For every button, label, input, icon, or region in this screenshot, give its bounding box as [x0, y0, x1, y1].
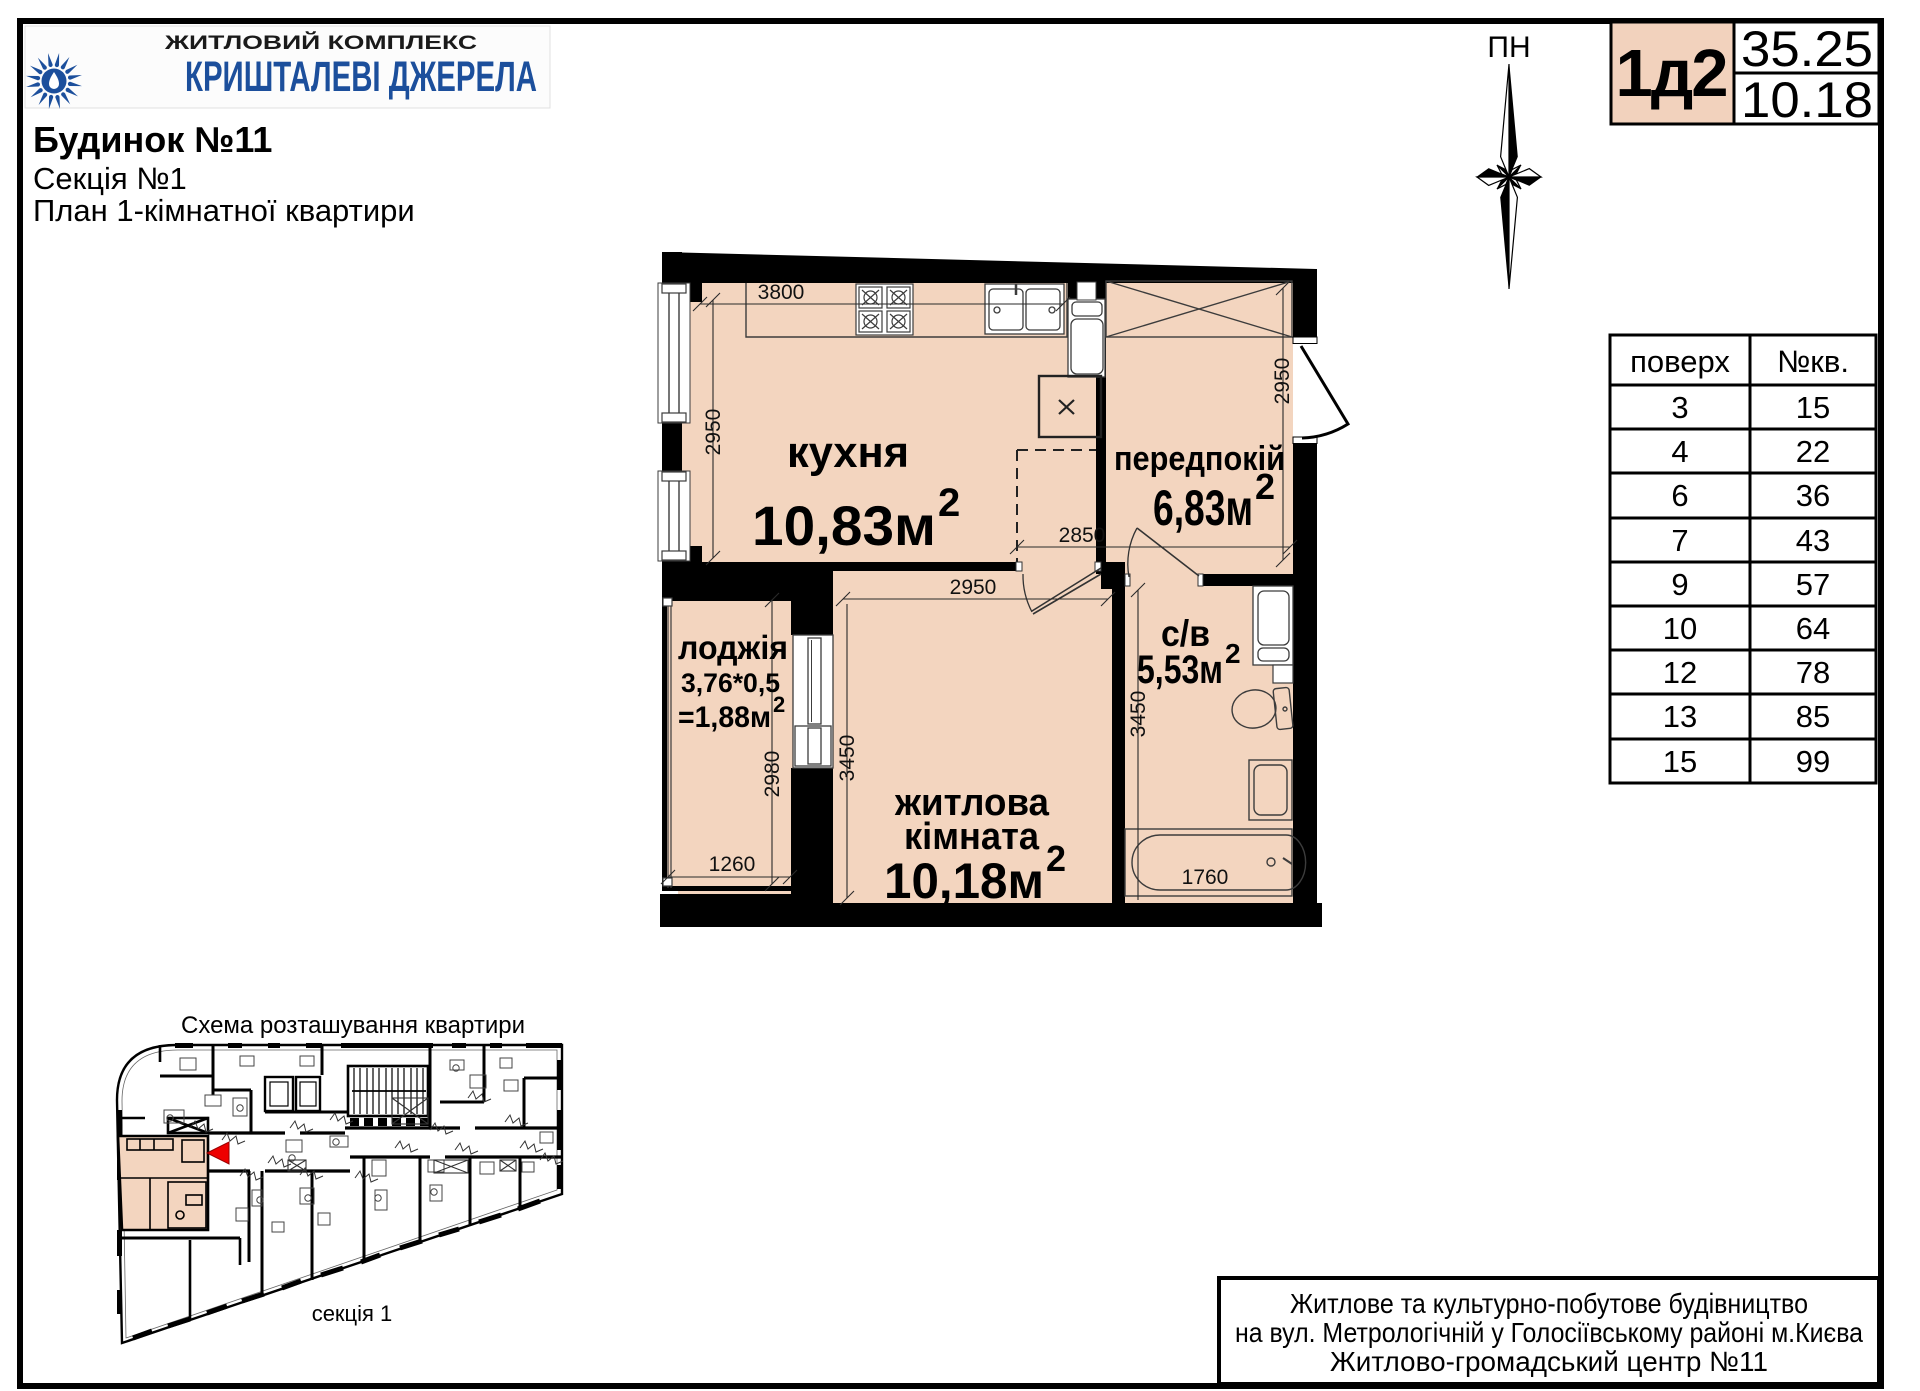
svg-text:=1,88м: =1,88м — [678, 701, 771, 734]
svg-text:64: 64 — [1796, 611, 1830, 646]
svg-text:10,18м: 10,18м — [884, 853, 1044, 909]
svg-text:№кв.: №кв. — [1777, 344, 1849, 379]
svg-text:Житлово-громадський центр №11: Житлово-громадський центр №11 — [1330, 1346, 1768, 1377]
svg-text:43: 43 — [1796, 523, 1830, 558]
svg-text:2: 2 — [1046, 838, 1066, 879]
svg-text:22: 22 — [1796, 434, 1830, 469]
svg-text:ЖИТЛОВИЙ КОМПЛЕКС: ЖИТЛОВИЙ КОМПЛЕКС — [164, 30, 477, 54]
svg-text:6: 6 — [1671, 478, 1688, 513]
svg-text:Секція №1: Секція №1 — [33, 161, 187, 196]
svg-text:7: 7 — [1671, 523, 1688, 558]
svg-text:6,83м: 6,83м — [1153, 480, 1253, 536]
svg-text:78: 78 — [1796, 655, 1830, 690]
svg-text:2: 2 — [1225, 638, 1241, 669]
svg-text:3450: 3450 — [1127, 691, 1150, 738]
svg-text:36: 36 — [1796, 478, 1830, 513]
svg-text:5,53м: 5,53м — [1137, 648, 1223, 692]
svg-text:1д2: 1д2 — [1615, 36, 1726, 111]
svg-text:1260: 1260 — [709, 853, 756, 876]
svg-text:2850: 2850 — [1059, 524, 1106, 547]
svg-text:План 1-кімнатної квартири: План 1-кімнатної квартири — [33, 193, 415, 228]
svg-text:35.25: 35.25 — [1741, 21, 1873, 77]
svg-text:10: 10 — [1663, 611, 1697, 646]
svg-text:15: 15 — [1663, 744, 1697, 779]
svg-text:КРИШТАЛЕВІ ДЖЕРЕЛА: КРИШТАЛЕВІ ДЖЕРЕЛА — [185, 53, 537, 101]
svg-text:10.18: 10.18 — [1741, 72, 1873, 128]
svg-text:Житлове та культурно-побутове: Житлове та культурно-побутове будівництв… — [1290, 1288, 1808, 1319]
svg-text:2950: 2950 — [950, 576, 997, 599]
svg-text:ПН: ПН — [1487, 31, 1530, 64]
svg-text:2: 2 — [938, 481, 960, 525]
svg-text:2: 2 — [1255, 466, 1275, 507]
svg-text:4: 4 — [1671, 434, 1688, 469]
svg-text:99: 99 — [1796, 744, 1830, 779]
svg-text:3450: 3450 — [836, 735, 859, 782]
svg-text:3800: 3800 — [758, 281, 805, 304]
svg-text:2950: 2950 — [702, 409, 725, 456]
svg-text:15: 15 — [1796, 390, 1830, 425]
svg-text:1760: 1760 — [1182, 866, 1229, 889]
svg-text:2: 2 — [773, 692, 785, 717]
svg-text:кухня: кухня — [787, 428, 909, 477]
svg-text:12: 12 — [1663, 655, 1697, 690]
svg-text:на вул. Метрологічній у Голосі: на вул. Метрологічній у Голосіївському р… — [1235, 1317, 1863, 1348]
svg-text:9: 9 — [1671, 567, 1688, 602]
svg-text:лоджія: лоджія — [678, 629, 788, 666]
svg-text:2950: 2950 — [1271, 358, 1294, 405]
svg-text:57: 57 — [1796, 567, 1830, 602]
svg-text:10,83м: 10,83м — [752, 494, 936, 557]
svg-text:Схема розташування квартири: Схема розташування квартири — [181, 1012, 525, 1039]
svg-text:поверх: поверх — [1630, 344, 1730, 379]
svg-text:13: 13 — [1663, 699, 1697, 734]
svg-text:2980: 2980 — [761, 751, 784, 798]
svg-text:85: 85 — [1796, 699, 1830, 734]
svg-text:3: 3 — [1671, 390, 1688, 425]
svg-text:Будинок №11: Будинок №11 — [33, 119, 272, 160]
svg-text:3,76*0,5: 3,76*0,5 — [681, 668, 780, 698]
svg-text:секція 1: секція 1 — [312, 1301, 393, 1326]
svg-text:кімната: кімната — [904, 816, 1040, 858]
